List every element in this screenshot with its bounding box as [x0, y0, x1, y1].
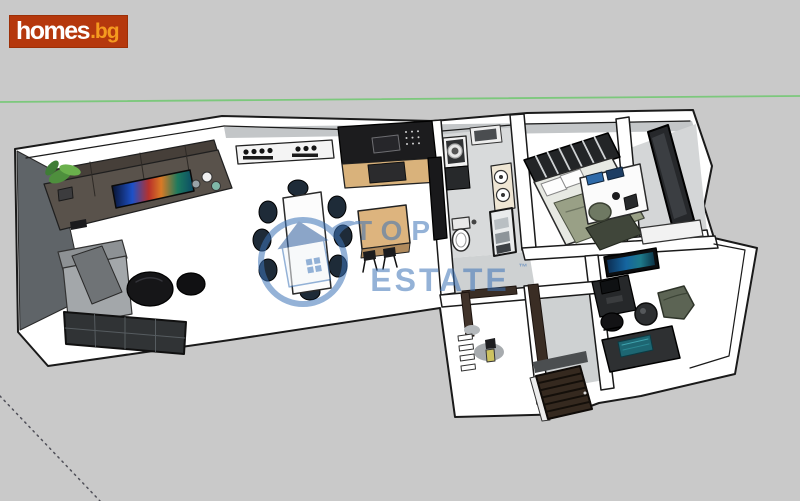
site-logo-suffix: .bg — [90, 21, 119, 42]
desk-item — [612, 192, 620, 200]
office-desk — [592, 275, 636, 317]
decor-ball — [202, 172, 212, 182]
double-sink — [491, 163, 515, 211]
dining-chair — [288, 180, 308, 196]
pouf-small — [177, 273, 205, 295]
bath-cabinet — [445, 166, 470, 190]
dashed-axis-line — [0, 396, 100, 501]
towel-shelf — [490, 208, 516, 256]
office-chair — [601, 313, 623, 331]
dining-chair — [259, 201, 277, 223]
desk-chair — [589, 203, 611, 221]
yellow-bottle — [486, 349, 495, 362]
cooktop — [368, 162, 406, 183]
watermark-trademark: ™ — [519, 262, 528, 272]
decor-vase — [192, 180, 200, 188]
washing-machine — [443, 136, 468, 168]
watermark-line2: ESTATE — [370, 262, 509, 298]
staircase — [530, 366, 592, 421]
door-knob — [584, 392, 587, 395]
site-logo[interactable]: homes .bg — [9, 15, 128, 48]
decor-vase-teal — [212, 182, 221, 191]
floor-plan-render: TOP ESTATE ™ — [0, 0, 800, 501]
round-side-table — [635, 303, 657, 325]
wall-oven — [372, 135, 400, 153]
site-logo-primary: homes — [16, 19, 89, 44]
dining-chair — [328, 196, 346, 218]
watermark-line1: TOP — [355, 215, 439, 246]
bath-wall-cabinet — [470, 125, 502, 145]
green-axis-line — [0, 96, 800, 102]
